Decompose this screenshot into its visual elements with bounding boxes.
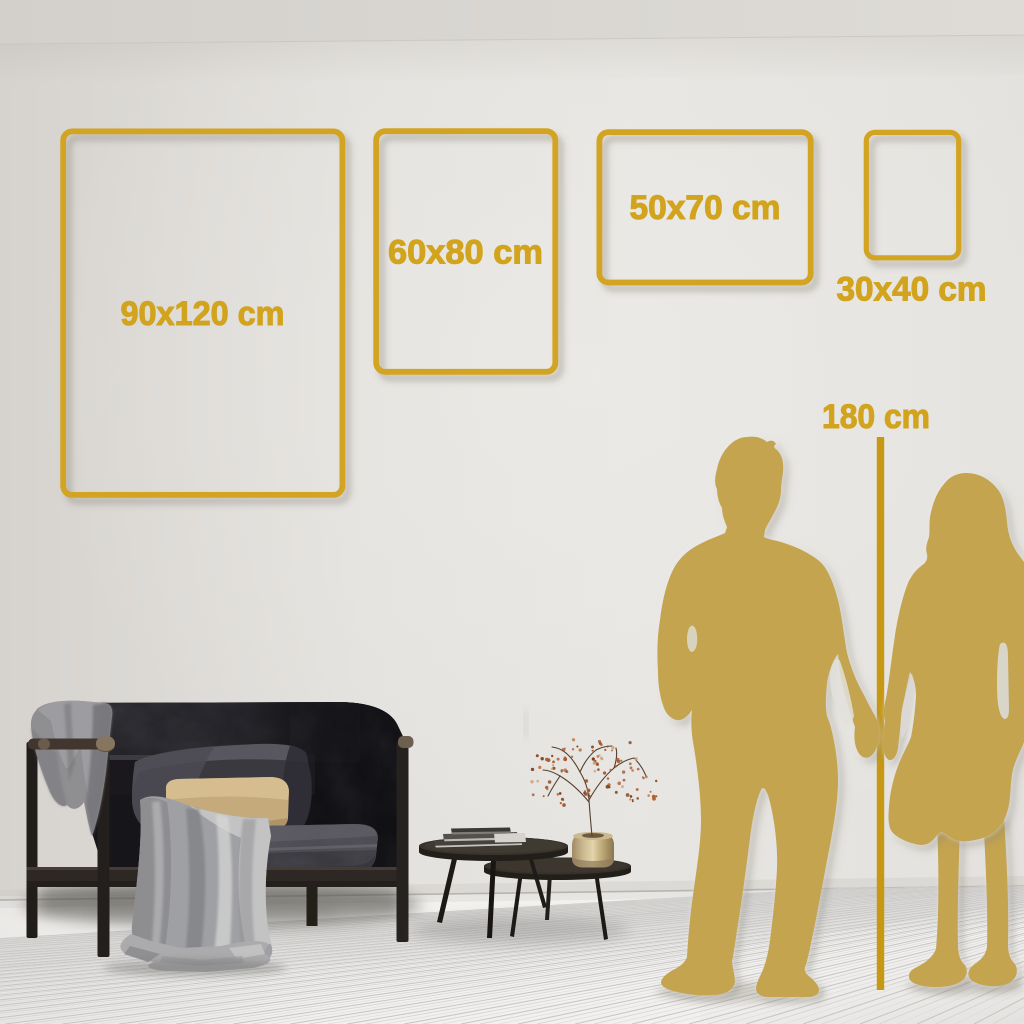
svg-text:180 cm: 180 cm [822, 398, 930, 436]
svg-text:60x80 cm: 60x80 cm [388, 234, 543, 272]
svg-text:90x120 cm: 90x120 cm [121, 295, 285, 333]
svg-text:50x70 cm: 50x70 cm [630, 189, 781, 227]
svg-text:30x40 cm: 30x40 cm [837, 271, 987, 309]
